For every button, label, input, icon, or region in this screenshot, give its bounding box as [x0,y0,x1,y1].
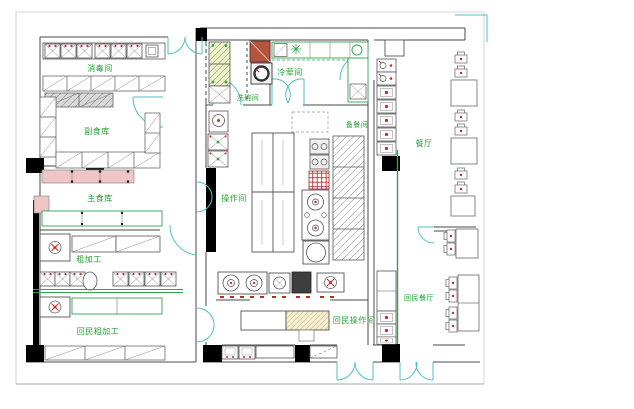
label-hui-dining-hall: 回民餐厅 [404,293,434,302]
sink [208,151,228,167]
room-hui-dining-fixtures [444,229,479,332]
label-dining-hall: 餐厅 [416,139,433,148]
room-operation-fixtures [208,111,364,298]
room-food-prep-fixtures [377,59,398,344]
room-dining-fixtures [451,52,477,216]
sink [208,134,228,150]
sink [222,346,238,359]
floor-plan-drawing: 消毒间 副食库 主食库 粗加工 回民粗加工 洗碗间 冷荤间 操作间 备餐间 餐厅… [0,0,634,409]
label-hui-operation-room: 回民操作间 [333,315,376,325]
label-rough-processing: 粗加工 [76,254,102,264]
label-dishwashing-room: 洗碗间 [237,93,260,102]
room-rough-processing-fixtures [33,234,183,293]
label-operation-room: 操作间 [221,193,247,203]
label-hui-rough-processing: 回民粗加工 [77,326,120,336]
shelf-rack [45,346,165,360]
cooking-range [302,139,329,264]
counter-edge [33,290,183,293]
label-disinfection-room: 消毒间 [87,63,113,73]
work-table [241,311,286,330]
tall-cabinet [333,136,364,260]
label-staple-storage: 主食库 [87,193,113,203]
work-table [72,236,160,252]
island-cabinet [252,133,294,252]
dining-table [451,80,477,106]
sink [239,346,255,359]
label-cold-dish-room: 冷荤间 [277,67,303,77]
star-symbol [291,44,301,54]
basin [83,272,97,290]
cutting-table [286,311,329,330]
sink [377,72,396,85]
dining-table [451,138,477,164]
label-food-prep-room: 备餐间 [346,120,369,129]
stove-counter [218,272,344,298]
room-hui-operation-fixtures [222,311,337,359]
dining-table [456,229,478,258]
sink [377,59,396,72]
label-nonstaple-storage: 副食库 [84,126,110,136]
red-tick-marks [220,296,334,298]
shelf-rack [43,76,165,91]
exhaust-hood [292,112,328,132]
floor-plan-page: 消毒间 副食库 主食库 粗加工 回民粗加工 洗碗间 冷荤间 操作间 备餐间 餐厅… [0,0,634,409]
dining-table [451,196,475,216]
